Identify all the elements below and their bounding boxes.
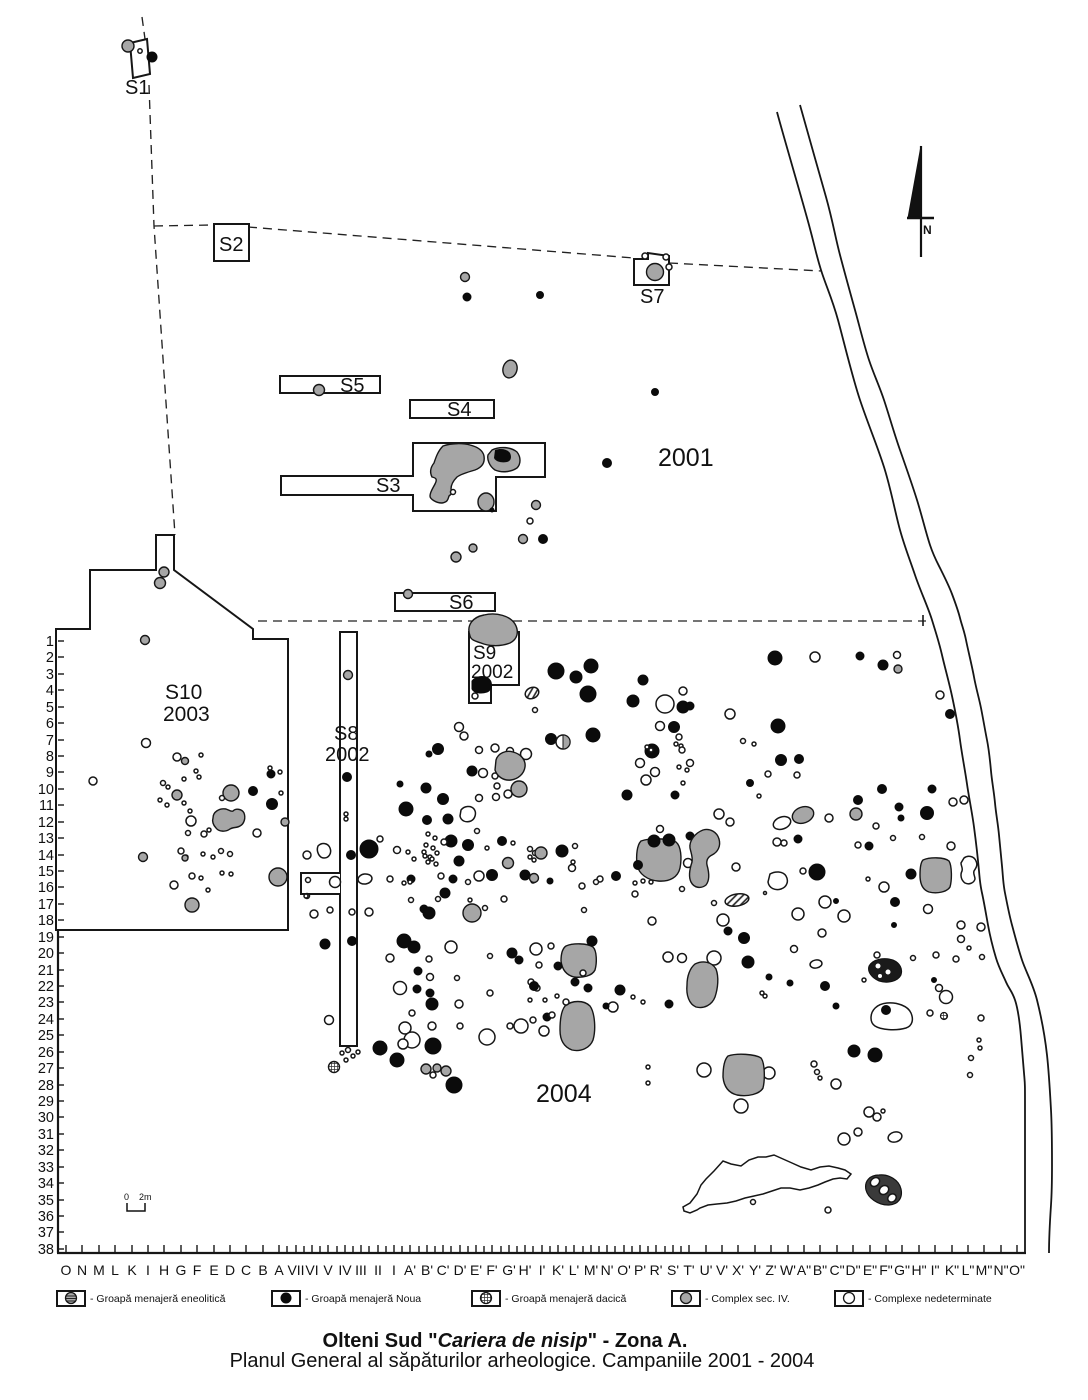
svg-text:A: A [274, 1262, 284, 1278]
svg-text:F": F" [879, 1262, 893, 1278]
svg-text:L": L" [962, 1262, 975, 1278]
svg-text:27: 27 [38, 1061, 54, 1077]
svg-text:V: V [323, 1262, 333, 1278]
svg-text:2002: 2002 [325, 744, 370, 766]
svg-text:B": B" [813, 1262, 827, 1278]
svg-text:F': F' [486, 1262, 497, 1278]
svg-text:20: 20 [38, 946, 54, 962]
svg-text:H: H [159, 1262, 169, 1278]
svg-text:T': T' [683, 1262, 694, 1278]
svg-text:10: 10 [38, 782, 54, 798]
svg-text:2m: 2m [139, 1192, 152, 1202]
svg-text:S7: S7 [640, 286, 664, 308]
svg-text:K': K' [552, 1262, 564, 1278]
svg-text:- Complexe nedeterminate: - Complexe nedeterminate [868, 1293, 992, 1305]
svg-text:S2: S2 [219, 234, 243, 256]
svg-text:- Groapă menajeră dacică: - Groapă menajeră dacică [505, 1293, 627, 1305]
svg-text:I: I [392, 1262, 396, 1278]
svg-text:8: 8 [46, 749, 54, 765]
svg-text:U': U' [700, 1262, 713, 1278]
svg-text:II: II [374, 1262, 382, 1278]
svg-text:M": M" [976, 1262, 993, 1278]
svg-text:S10: S10 [165, 681, 202, 704]
svg-text:2004: 2004 [536, 1080, 592, 1108]
svg-text:I: I [146, 1262, 150, 1278]
svg-text:1: 1 [46, 634, 54, 650]
svg-text:C": C" [829, 1262, 844, 1278]
svg-text:F: F [193, 1262, 202, 1278]
svg-text:- Complex sec. IV.: - Complex sec. IV. [705, 1293, 790, 1305]
svg-text:I": I" [931, 1262, 940, 1278]
svg-text:28: 28 [38, 1078, 54, 1094]
svg-text:L: L [111, 1262, 119, 1278]
svg-text:VI: VI [305, 1262, 318, 1278]
svg-text:Olteni Sud "Cariera de nisip": Olteni Sud "Cariera de nisip" - Zona A. [323, 1330, 688, 1352]
svg-text:B': B' [421, 1262, 433, 1278]
svg-text:38: 38 [38, 1242, 54, 1258]
svg-text:S4: S4 [447, 399, 471, 421]
svg-text:E": E" [863, 1262, 877, 1278]
svg-text:15: 15 [38, 864, 54, 880]
svg-text:29: 29 [38, 1094, 54, 1110]
svg-text:21: 21 [38, 963, 54, 979]
svg-text:G': G' [502, 1262, 516, 1278]
svg-text:O: O [61, 1262, 72, 1278]
svg-text:18: 18 [38, 913, 54, 929]
svg-text:E: E [209, 1262, 218, 1278]
svg-text:N": N" [993, 1262, 1008, 1278]
svg-text:K": K" [945, 1262, 959, 1278]
svg-text:Y': Y' [749, 1262, 761, 1278]
svg-text:A': A' [404, 1262, 416, 1278]
svg-text:4: 4 [46, 683, 54, 699]
svg-text:22: 22 [38, 979, 54, 995]
svg-text:17: 17 [38, 897, 54, 913]
svg-text:13: 13 [38, 831, 54, 847]
svg-text:N: N [923, 223, 932, 237]
svg-text:- Groapă menajeră Noua: - Groapă menajeră Noua [305, 1293, 421, 1305]
svg-text:H": H" [911, 1262, 926, 1278]
svg-text:2003: 2003 [163, 703, 210, 726]
svg-text:23: 23 [38, 995, 54, 1011]
svg-text:32: 32 [38, 1143, 54, 1159]
svg-text:R': R' [650, 1262, 663, 1278]
svg-text:S1: S1 [125, 77, 149, 99]
svg-text:26: 26 [38, 1045, 54, 1061]
svg-text:III: III [355, 1262, 367, 1278]
svg-text:N': N' [601, 1262, 614, 1278]
svg-text:C: C [241, 1262, 251, 1278]
svg-text:24: 24 [38, 1012, 54, 1028]
svg-text:Planul General al săpăturilor: Planul General al săpăturilor arheologic… [230, 1350, 815, 1372]
svg-text:Z': Z' [765, 1262, 776, 1278]
svg-text:36: 36 [38, 1209, 54, 1225]
svg-text:A": A" [797, 1262, 811, 1278]
svg-text:2001: 2001 [658, 444, 714, 472]
svg-text:H': H' [519, 1262, 532, 1278]
svg-text:S3: S3 [376, 475, 400, 497]
svg-text:VII: VII [287, 1262, 304, 1278]
svg-text:D": D" [845, 1262, 860, 1278]
svg-text:N: N [77, 1262, 87, 1278]
svg-text:D': D' [454, 1262, 467, 1278]
svg-text:S': S' [667, 1262, 679, 1278]
svg-text:S6: S6 [449, 592, 473, 614]
svg-text:34: 34 [38, 1176, 54, 1192]
svg-text:O': O' [617, 1262, 631, 1278]
svg-text:G": G" [894, 1262, 910, 1278]
svg-text:D: D [225, 1262, 235, 1278]
svg-text:33: 33 [38, 1160, 54, 1176]
svg-text:L': L' [569, 1262, 579, 1278]
svg-text:6: 6 [46, 716, 54, 732]
svg-text:16: 16 [38, 880, 54, 896]
svg-text:O": O" [1009, 1262, 1025, 1278]
svg-text:S5: S5 [340, 375, 364, 397]
svg-text:31: 31 [38, 1127, 54, 1143]
svg-text:7: 7 [46, 733, 54, 749]
svg-text:12: 12 [38, 815, 54, 831]
svg-text:37: 37 [38, 1225, 54, 1241]
svg-text:3: 3 [46, 667, 54, 683]
svg-text:9: 9 [46, 765, 54, 781]
svg-text:30: 30 [38, 1110, 54, 1126]
svg-text:S9: S9 [473, 643, 496, 664]
svg-text:0: 0 [124, 1192, 129, 1202]
svg-text:IV: IV [338, 1262, 352, 1278]
svg-text:C': C' [437, 1262, 450, 1278]
svg-text:E': E' [470, 1262, 482, 1278]
svg-text:35: 35 [38, 1193, 54, 1209]
svg-text:P': P' [634, 1262, 646, 1278]
svg-text:K: K [127, 1262, 137, 1278]
svg-text:I': I' [539, 1262, 546, 1278]
svg-text:25: 25 [38, 1028, 54, 1044]
svg-text:G: G [176, 1262, 187, 1278]
svg-text:M': M' [584, 1262, 598, 1278]
svg-text:V': V' [716, 1262, 728, 1278]
svg-text:M: M [93, 1262, 105, 1278]
svg-text:X': X' [732, 1262, 744, 1278]
svg-text:14: 14 [38, 848, 54, 864]
svg-text:S8: S8 [334, 723, 358, 745]
svg-text:- Groapă menajeră eneolitică: - Groapă menajeră eneolitică [90, 1293, 226, 1305]
svg-text:5: 5 [46, 700, 54, 716]
svg-text:2: 2 [46, 650, 54, 666]
svg-text:B: B [258, 1262, 267, 1278]
svg-text:W': W' [780, 1262, 796, 1278]
svg-text:19: 19 [38, 930, 54, 946]
svg-text:11: 11 [39, 798, 54, 814]
